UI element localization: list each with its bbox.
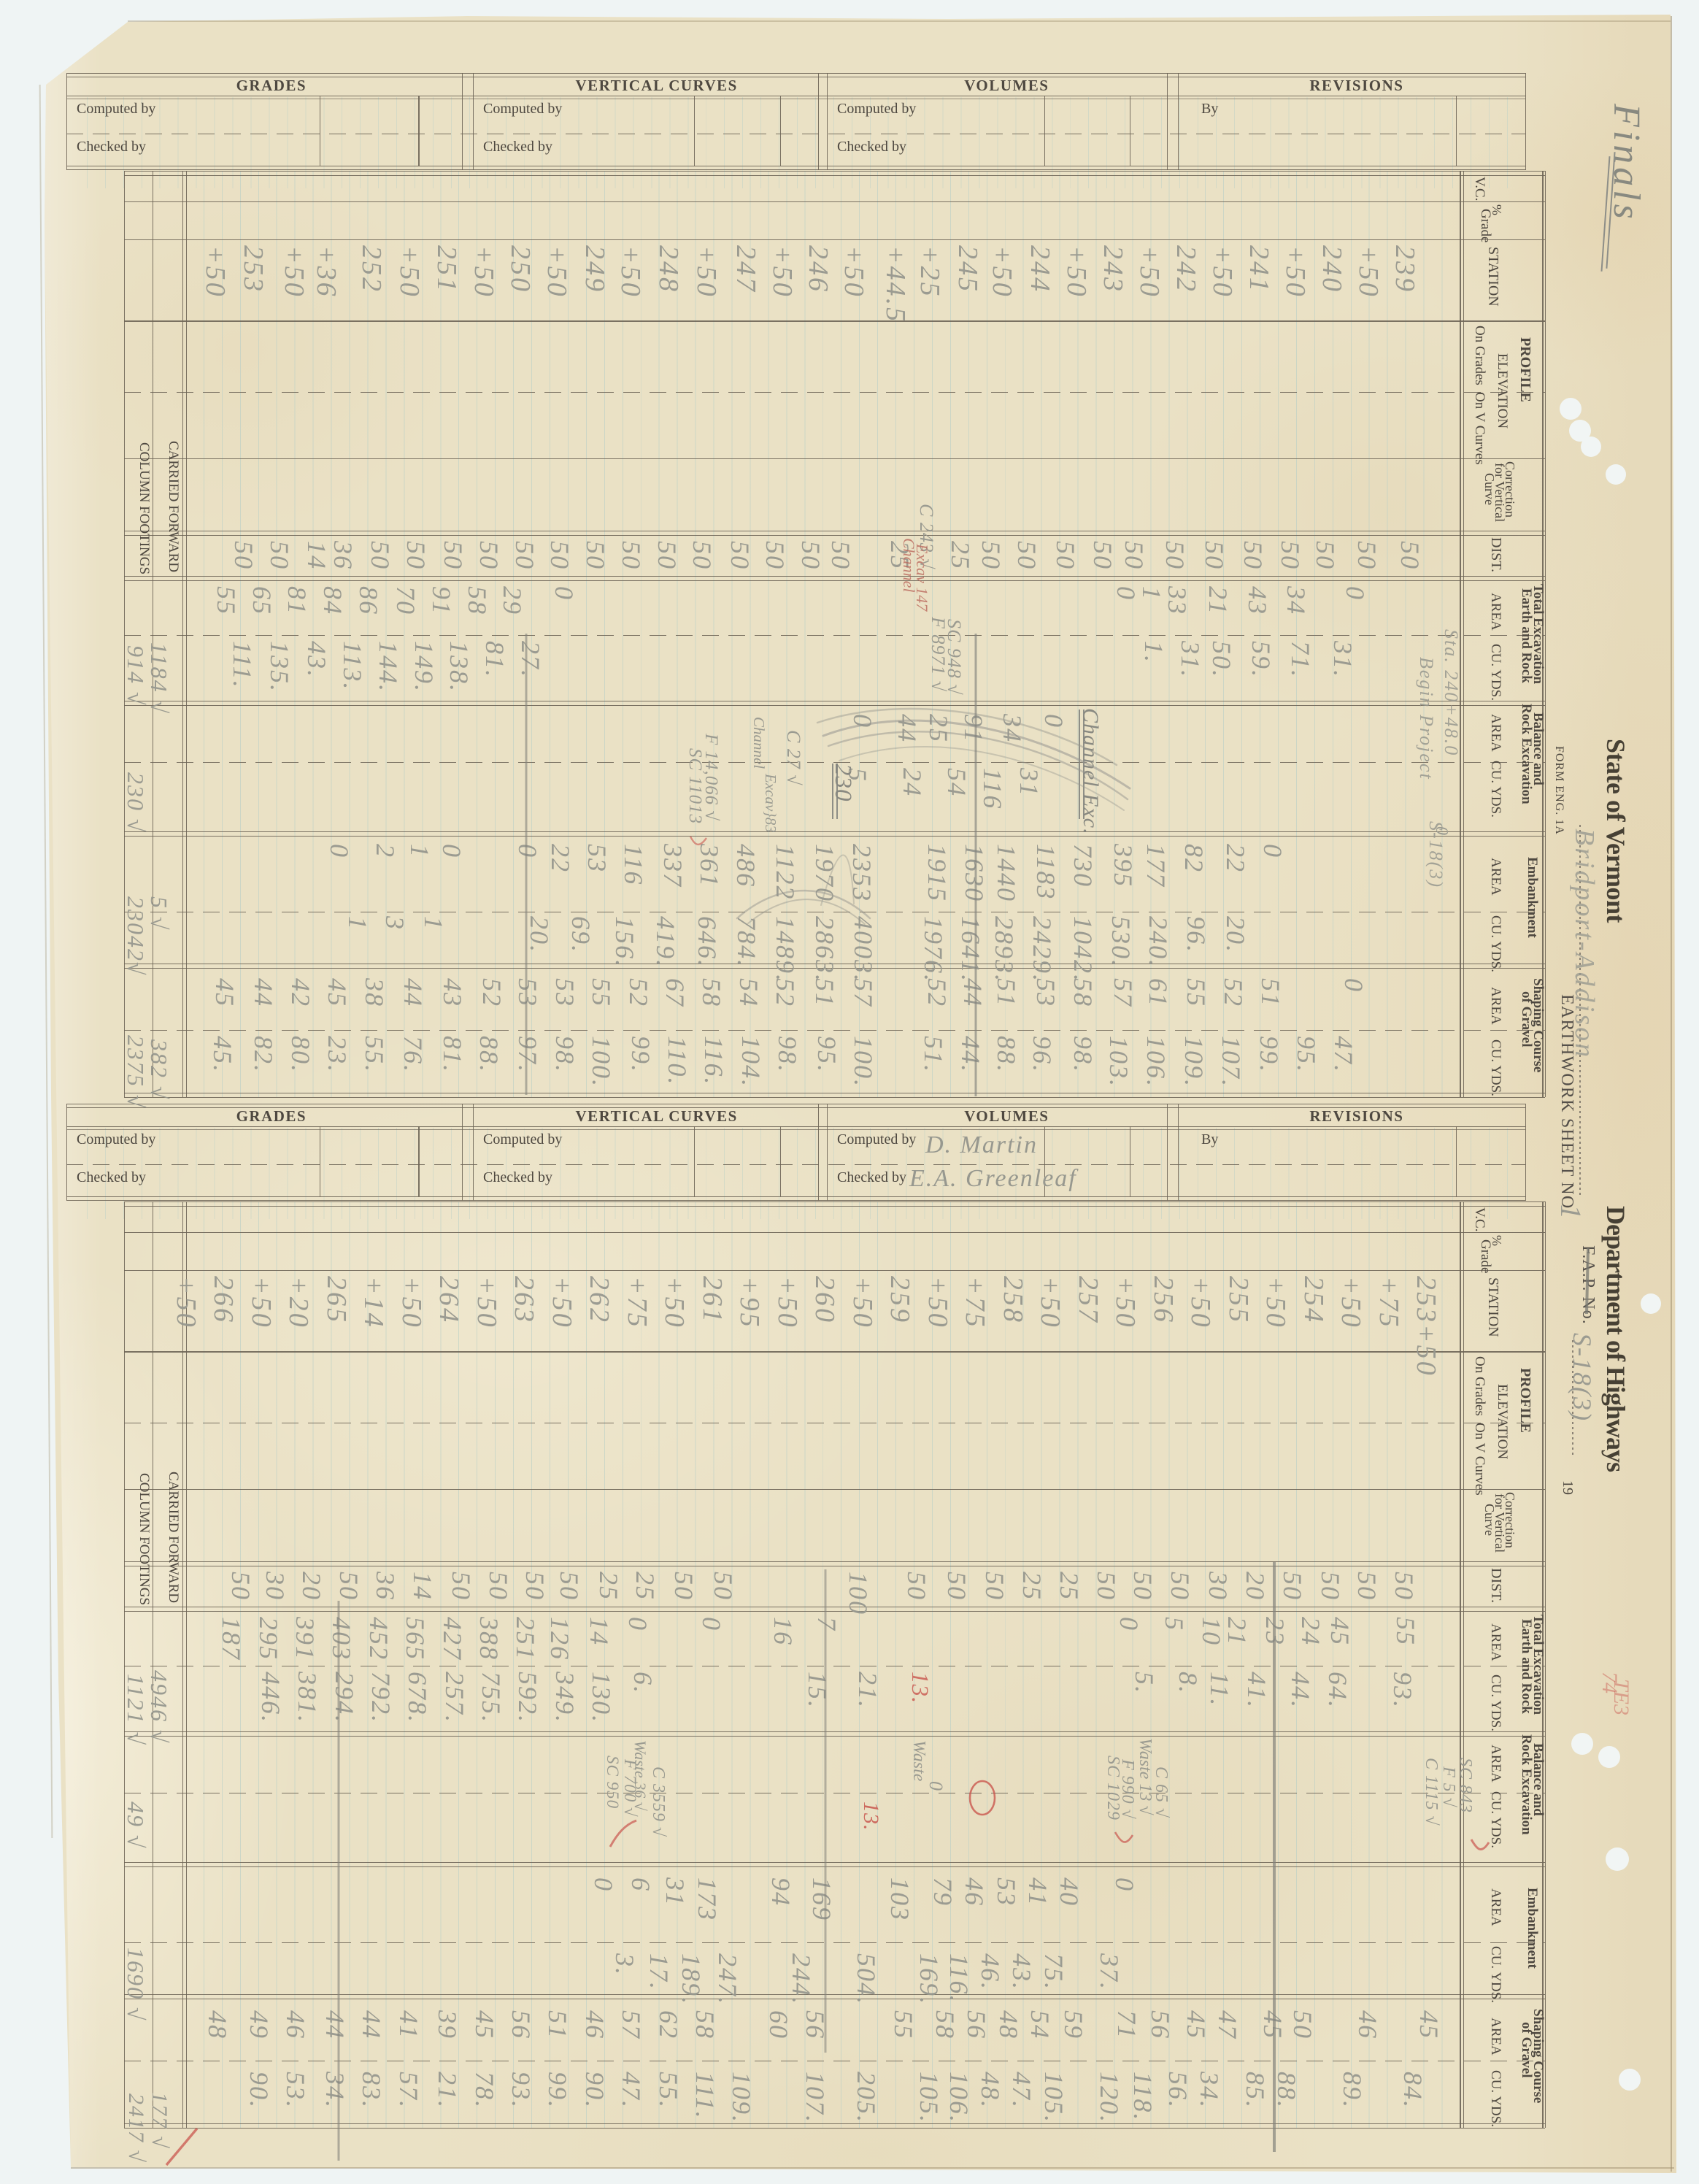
svg-text:TE3: TE3 [1609,1679,1633,1715]
